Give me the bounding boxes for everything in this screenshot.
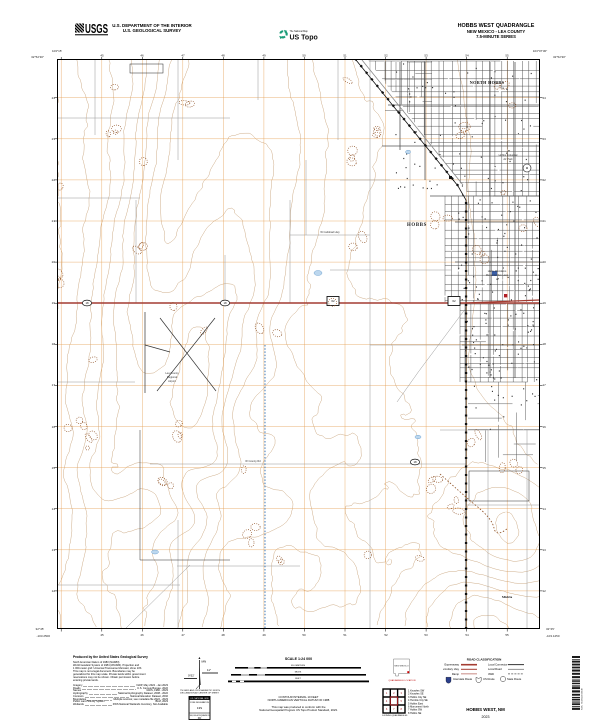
svg-text:FD: FD xyxy=(198,716,202,720)
svg-text:103°15': 103°15' xyxy=(52,49,63,53)
svg-text:62: 62 xyxy=(331,299,335,303)
svg-text:Local Road: Local Road xyxy=(488,667,502,671)
svg-text:13S: 13S xyxy=(197,706,202,710)
svg-text:32°45': 32°45' xyxy=(36,627,45,631)
svg-text:19: 19 xyxy=(543,301,547,305)
svg-text:50: 50 xyxy=(302,633,306,637)
svg-text:18: 18 xyxy=(543,342,547,346)
svg-text:45: 45 xyxy=(100,54,104,58)
svg-text:Midvia: Midvia xyxy=(502,595,513,599)
svg-text:7: 7 xyxy=(393,707,395,711)
svg-text:21: 21 xyxy=(543,219,547,223)
svg-text:4: 4 xyxy=(386,699,388,703)
svg-text:47: 47 xyxy=(181,633,185,637)
svg-text:KILOMETERS: KILOMETERS xyxy=(291,665,306,667)
svg-text:52: 52 xyxy=(384,54,388,58)
svg-text:23: 23 xyxy=(543,137,547,141)
svg-text:54: 54 xyxy=(465,633,469,637)
svg-text:24: 24 xyxy=(52,96,56,100)
svg-text:53: 53 xyxy=(424,54,428,58)
svg-text:49: 49 xyxy=(262,54,266,58)
svg-text:-103.2500: -103.2500 xyxy=(36,634,50,638)
svg-text:54: 54 xyxy=(465,54,469,58)
svg-text:3: 3 xyxy=(400,691,402,695)
svg-text:18: 18 xyxy=(85,301,89,305)
svg-text:18: 18 xyxy=(413,460,417,464)
svg-text:HOBBS: HOBBS xyxy=(407,223,427,228)
svg-text:Secondary Hwy: Secondary Hwy xyxy=(443,667,460,671)
svg-text:45: 45 xyxy=(100,633,104,637)
svg-text:22: 22 xyxy=(543,178,547,182)
svg-text:Air Park: Air Park xyxy=(503,157,513,161)
svg-text:0°52': 0°52' xyxy=(188,674,195,678)
svg-text:State Route: State Route xyxy=(507,677,522,681)
svg-text:62: 62 xyxy=(452,299,456,303)
svg-text:22: 22 xyxy=(52,178,56,182)
svg-text:W Carlsbad Hwy: W Carlsbad Hwy xyxy=(320,230,340,234)
svg-text:55: 55 xyxy=(505,633,509,637)
svg-text:Hobbs Industrial: Hobbs Industrial xyxy=(499,153,518,157)
svg-text:46: 46 xyxy=(140,633,144,637)
svg-text:-103.1250: -103.1250 xyxy=(546,634,560,638)
svg-text:18: 18 xyxy=(223,301,227,305)
svg-text:1: 1 xyxy=(386,691,388,695)
svg-text:Interstate Route: Interstate Route xyxy=(453,677,473,681)
svg-text:14: 14 xyxy=(52,507,56,511)
svg-text:48: 48 xyxy=(221,54,225,58)
svg-text:Local Connector: Local Connector xyxy=(488,663,508,667)
svg-text:ZONE DESIGNATION: ZONE DESIGNATION xyxy=(190,701,209,704)
svg-text:47: 47 xyxy=(181,54,185,58)
svg-text:32°52'30": 32°52'30" xyxy=(31,55,44,59)
svg-text:51: 51 xyxy=(343,54,347,58)
svg-text:6: 6 xyxy=(386,707,388,711)
svg-text:51: 51 xyxy=(343,633,347,637)
svg-text:32°52'30": 32°52'30" xyxy=(553,55,566,59)
svg-text:5: 5 xyxy=(400,699,402,703)
svg-text:UTM GRID AND 2023 MAGNETIC NOR: UTM GRID AND 2023 MAGNETIC NORTH xyxy=(180,689,220,692)
svg-text:ROAD CLASSIFICATION: ROAD CLASSIFICATION xyxy=(467,658,502,662)
svg-text:12: 12 xyxy=(52,589,56,593)
svg-text:15: 15 xyxy=(543,466,547,470)
svg-text:46: 46 xyxy=(140,54,144,58)
svg-text:11°: 11° xyxy=(207,668,211,672)
svg-text:4WD: 4WD xyxy=(488,672,494,676)
svg-text:ADJOINING QUADRANGLES: ADJOINING QUADRANGLES xyxy=(382,714,408,717)
svg-text:52: 52 xyxy=(384,633,388,637)
svg-text:20: 20 xyxy=(52,260,56,264)
svg-text:19: 19 xyxy=(52,301,56,305)
svg-text:13: 13 xyxy=(52,548,56,552)
svg-text:21: 21 xyxy=(52,219,56,223)
svg-text:MILES: MILES xyxy=(295,672,302,674)
svg-text:53: 53 xyxy=(424,633,428,637)
svg-text:49: 49 xyxy=(262,633,266,637)
svg-text:20: 20 xyxy=(543,260,547,264)
svg-text:24: 24 xyxy=(543,96,547,100)
svg-text:NEW MEXICO: NEW MEXICO xyxy=(394,666,409,668)
svg-text:Memorial Bus Loop: Memorial Bus Loop xyxy=(486,273,509,277)
svg-text:FEET: FEET xyxy=(295,678,301,680)
svg-text:U.S. NATIONAL GRID: U.S. NATIONAL GRID xyxy=(190,697,209,700)
svg-text:Ramp: Ramp xyxy=(452,672,460,676)
svg-text:Expressway: Expressway xyxy=(445,663,460,667)
svg-text:Lea County: Lea County xyxy=(165,371,179,375)
svg-text:16: 16 xyxy=(52,425,56,429)
svg-text:32°45': 32°45' xyxy=(546,627,555,631)
svg-text:NSN. 7643014674648: NSN. 7643014674648 xyxy=(582,688,584,710)
svg-text:12: 12 xyxy=(543,589,547,593)
svg-text:8 Hobbs SE: 8 Hobbs SE xyxy=(408,712,422,715)
svg-text:Airport: Airport xyxy=(168,379,176,383)
svg-text:DECLINATION AT CENTER OF SHEET: DECLINATION AT CENTER OF SHEET xyxy=(180,691,219,694)
svg-text:14: 14 xyxy=(543,507,547,511)
svg-text:16: 16 xyxy=(543,425,547,429)
svg-text:US Route: US Route xyxy=(483,677,495,681)
svg-text:W County Rd: W County Rd xyxy=(245,459,261,463)
svg-text:17: 17 xyxy=(52,383,56,387)
svg-text:Harry McAdams: Harry McAdams xyxy=(488,269,507,273)
svg-text:50: 50 xyxy=(302,54,306,58)
svg-text:15: 15 xyxy=(52,466,56,470)
svg-text:8: 8 xyxy=(400,707,402,711)
svg-text:103°07'30": 103°07'30" xyxy=(533,49,548,53)
svg-text:Regional: Regional xyxy=(167,375,178,379)
svg-text:18: 18 xyxy=(52,342,56,346)
svg-text:48: 48 xyxy=(221,633,225,637)
svg-text:55: 55 xyxy=(505,54,509,58)
svg-text:23: 23 xyxy=(52,137,56,141)
svg-text:2: 2 xyxy=(393,691,395,695)
svg-text:NORTH HOBBS: NORTH HOBBS xyxy=(470,80,505,85)
svg-text:13: 13 xyxy=(543,548,547,552)
svg-text:MN: MN xyxy=(202,660,207,664)
svg-text:17: 17 xyxy=(543,383,547,387)
